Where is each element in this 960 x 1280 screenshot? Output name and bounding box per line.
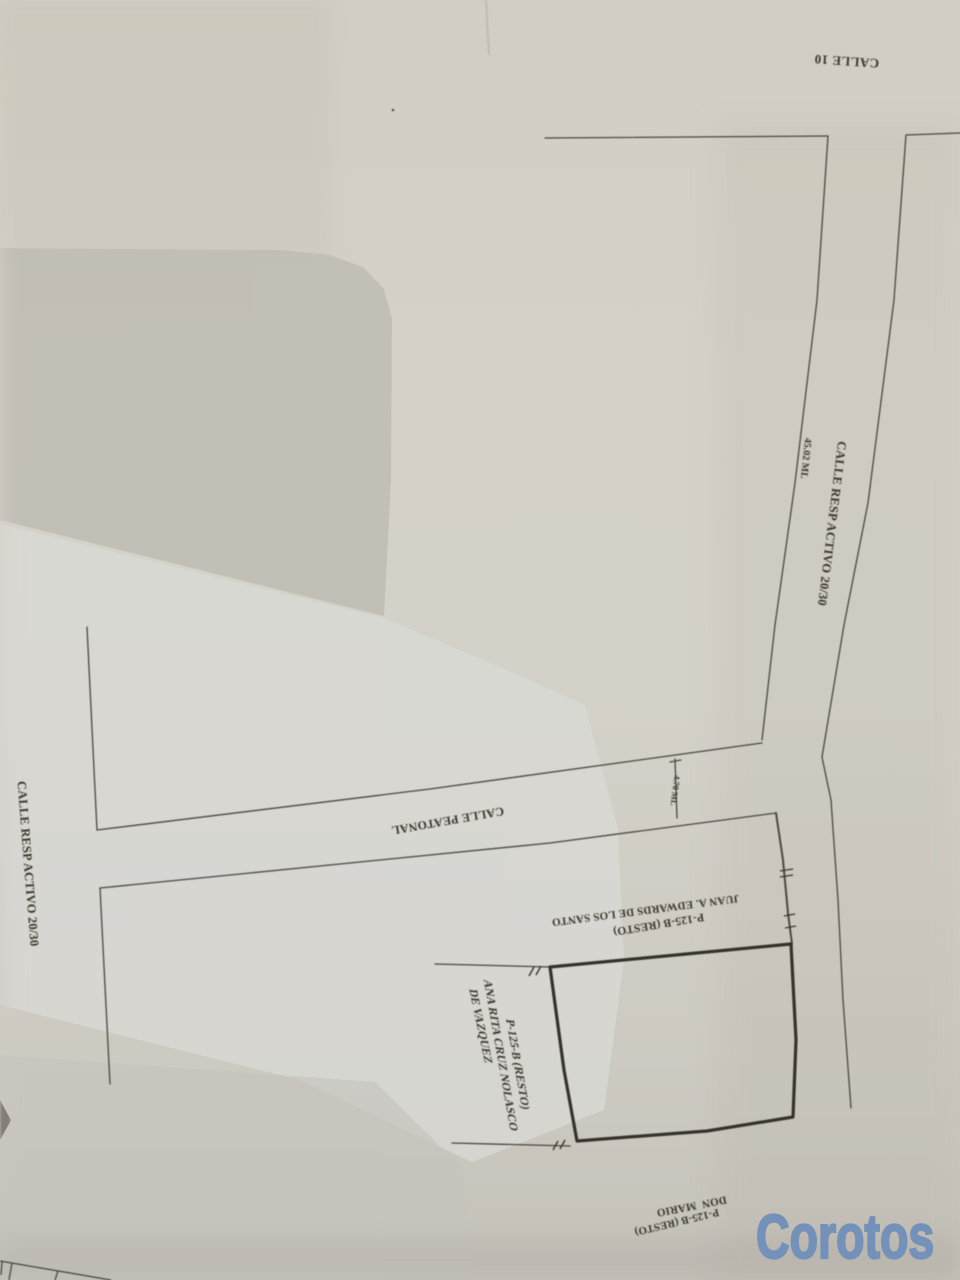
svg-text:CALLE RESP ACTIVO 20/30: CALLE RESP ACTIVO 20/30 bbox=[15, 780, 42, 946]
svg-text:CALLE 10: CALLE 10 bbox=[814, 52, 880, 72]
svg-text:CALLE PEATONAL: CALLE PEATONAL bbox=[390, 804, 505, 838]
svg-text:4.70 ML: 4.70 ML bbox=[669, 775, 683, 807]
svg-text:CALLE RESP ACTIVO 20/30: CALLE RESP ACTIVO 20/30 bbox=[815, 440, 849, 606]
